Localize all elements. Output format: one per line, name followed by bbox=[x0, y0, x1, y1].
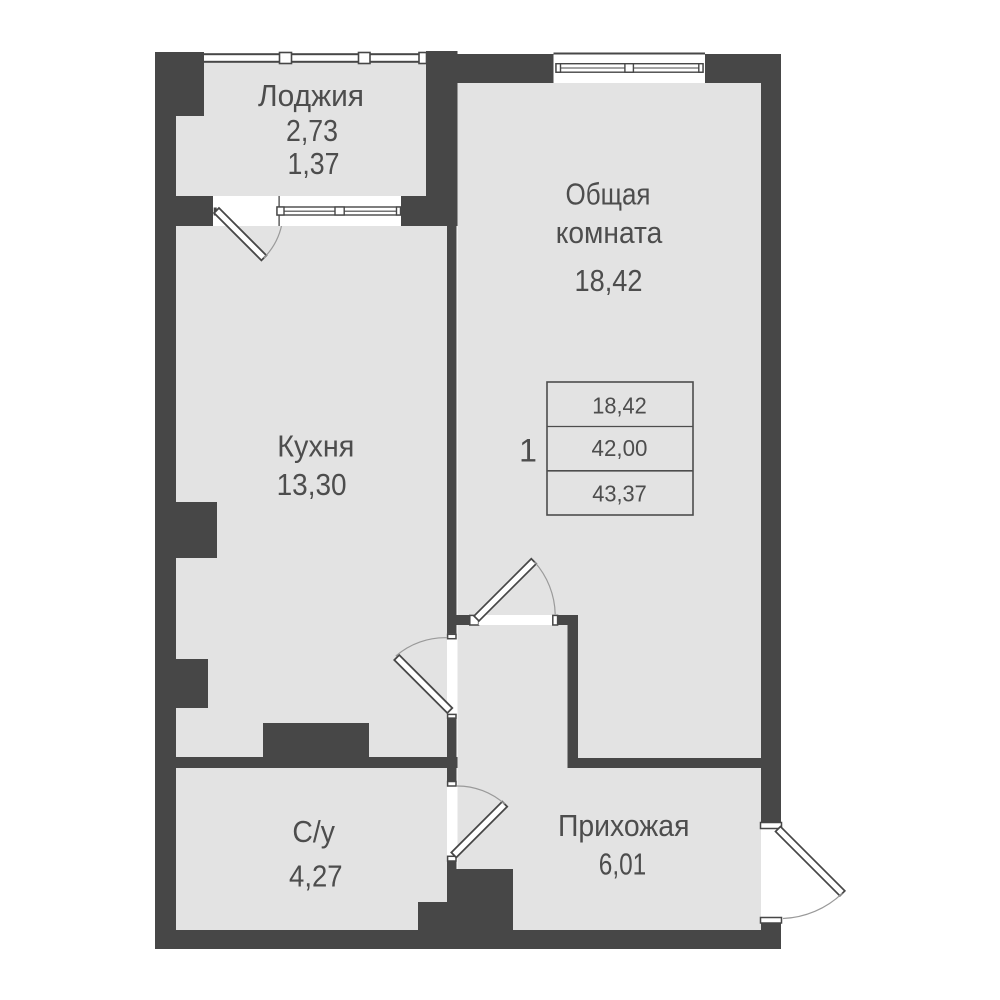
svg-text:42,00: 42,00 bbox=[592, 435, 648, 461]
svg-text:Общая: Общая bbox=[566, 177, 651, 212]
svg-text:2,73: 2,73 bbox=[286, 113, 338, 148]
svg-text:43,37: 43,37 bbox=[592, 481, 647, 507]
svg-text:6,01: 6,01 bbox=[599, 847, 647, 882]
svg-text:13,30: 13,30 bbox=[277, 467, 347, 502]
svg-text:18,42: 18,42 bbox=[592, 392, 647, 418]
svg-text:Лоджия: Лоджия bbox=[258, 78, 364, 113]
svg-text:1,37: 1,37 bbox=[288, 146, 340, 181]
svg-text:Кухня: Кухня bbox=[277, 428, 354, 463]
svg-text:18,42: 18,42 bbox=[575, 263, 643, 298]
svg-text:4,27: 4,27 bbox=[289, 859, 343, 894]
svg-text:С/у: С/у bbox=[292, 814, 335, 849]
svg-text:1: 1 bbox=[519, 432, 537, 468]
svg-text:Прихожая: Прихожая bbox=[558, 808, 690, 843]
svg-text:комната: комната bbox=[556, 215, 663, 250]
